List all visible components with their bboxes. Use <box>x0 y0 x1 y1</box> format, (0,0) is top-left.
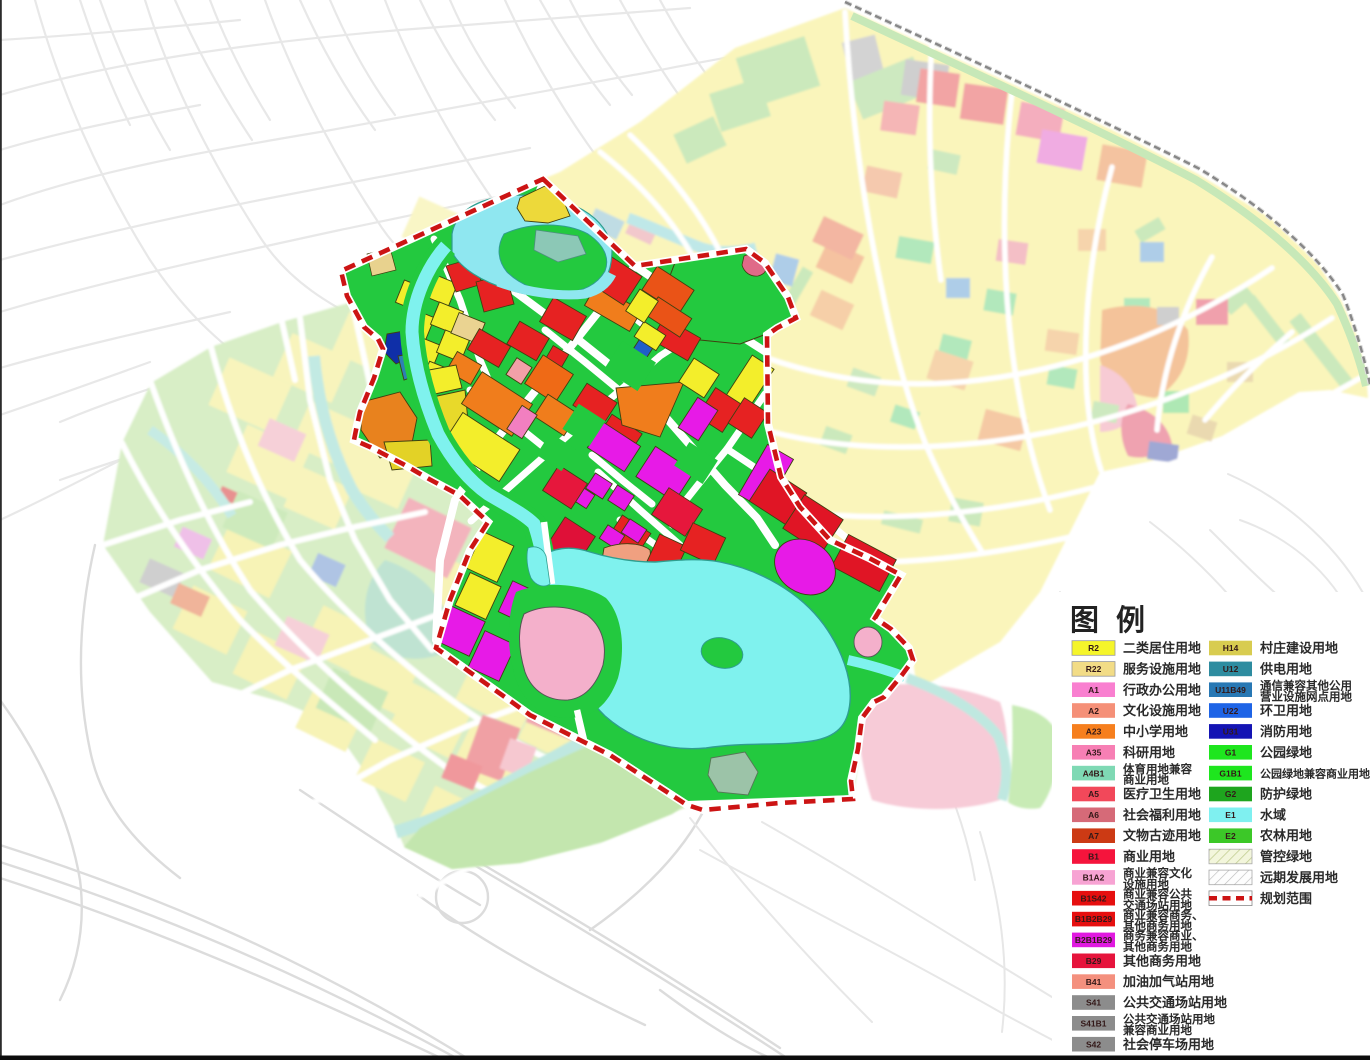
svg-text:U31: U31 <box>1223 727 1239 737</box>
svg-text:B41: B41 <box>1086 977 1102 987</box>
svg-text:H14: H14 <box>1223 643 1239 653</box>
svg-text:公园绿地兼容商业用地: 公园绿地兼容商业用地 <box>1260 767 1370 781</box>
svg-text:医疗卫生用地: 医疗卫生用地 <box>1123 787 1201 802</box>
svg-text:社会停车场用地: 社会停车场用地 <box>1122 1037 1214 1052</box>
svg-text:中小学用地: 中小学用地 <box>1123 724 1188 739</box>
svg-text:B1: B1 <box>1088 852 1099 862</box>
svg-text:消防用地: 消防用地 <box>1260 724 1312 739</box>
svg-text:水域: 水域 <box>1260 807 1286 822</box>
svg-text:商业用地: 商业用地 <box>1123 849 1175 864</box>
svg-text:B29: B29 <box>1086 956 1102 966</box>
svg-text:例: 例 <box>1116 603 1145 637</box>
svg-text:B2B1B29: B2B1B29 <box>1075 935 1113 945</box>
svg-text:远期发展用地: 远期发展用地 <box>1260 870 1338 885</box>
svg-text:管控绿地: 管控绿地 <box>1260 849 1312 864</box>
svg-text:R2: R2 <box>1088 643 1099 653</box>
svg-text:A6: A6 <box>1088 810 1099 820</box>
svg-text:U12: U12 <box>1223 664 1239 674</box>
svg-text:S42: S42 <box>1086 1039 1101 1049</box>
svg-text:S41: S41 <box>1086 998 1101 1008</box>
svg-text:文物古迹用地: 文物古迹用地 <box>1123 828 1201 843</box>
svg-text:兼容商业用地: 兼容商业用地 <box>1122 1023 1192 1037</box>
svg-text:商业兼容文化: 商业兼容文化 <box>1123 866 1192 880</box>
svg-text:A4B1: A4B1 <box>1083 768 1105 778</box>
svg-text:防护绿地: 防护绿地 <box>1260 787 1312 802</box>
svg-text:其他商务用地: 其他商务用地 <box>1123 953 1201 968</box>
svg-text:G2: G2 <box>1225 789 1237 799</box>
svg-text:U22: U22 <box>1223 706 1239 716</box>
svg-text:E2: E2 <box>1225 831 1236 841</box>
svg-text:A5: A5 <box>1088 789 1099 799</box>
svg-text:B1A2: B1A2 <box>1083 873 1105 883</box>
svg-text:G1B1: G1B1 <box>1219 768 1241 778</box>
svg-text:加油加气站用地: 加油加气站用地 <box>1122 974 1214 989</box>
svg-text:U11B49: U11B49 <box>1215 685 1246 695</box>
svg-text:规划范围: 规划范围 <box>1260 891 1312 906</box>
svg-text:环卫用地: 环卫用地 <box>1260 703 1312 718</box>
svg-text:科研用地: 科研用地 <box>1123 745 1175 760</box>
svg-text:A35: A35 <box>1086 748 1102 758</box>
svg-text:行政办公用地: 行政办公用地 <box>1122 682 1201 697</box>
svg-text:E1: E1 <box>1225 810 1236 820</box>
svg-text:服务设施用地: 服务设施用地 <box>1123 662 1201 677</box>
svg-text:R22: R22 <box>1086 664 1102 674</box>
svg-text:B1S42: B1S42 <box>1081 893 1107 903</box>
svg-text:A7: A7 <box>1088 831 1099 841</box>
svg-text:G1: G1 <box>1225 748 1237 758</box>
svg-text:村庄建设用地: 村庄建设用地 <box>1260 641 1338 656</box>
svg-text:其他商务用地: 其他商务用地 <box>1123 940 1192 954</box>
svg-text:农林用地: 农林用地 <box>1259 828 1312 843</box>
svg-text:A23: A23 <box>1086 727 1102 737</box>
svg-text:公共交通场站用地: 公共交通场站用地 <box>1123 995 1227 1010</box>
svg-text:A2: A2 <box>1088 706 1099 716</box>
svg-text:营业设施网点用地: 营业设施网点用地 <box>1260 689 1352 703</box>
svg-text:A1: A1 <box>1088 685 1099 695</box>
svg-text:文化设施用地: 文化设施用地 <box>1123 703 1201 718</box>
svg-text:图: 图 <box>1070 605 1099 637</box>
svg-text:B1B2B29: B1B2B29 <box>1075 914 1113 924</box>
svg-text:S41B1: S41B1 <box>1081 1019 1107 1029</box>
svg-text:公园绿地: 公园绿地 <box>1260 745 1312 760</box>
svg-text:二类居住用地: 二类居住用地 <box>1123 641 1201 656</box>
svg-text:供电用地: 供电用地 <box>1259 662 1312 677</box>
svg-text:商业用地: 商业用地 <box>1123 773 1169 787</box>
svg-text:社会福利用地: 社会福利用地 <box>1122 807 1201 822</box>
